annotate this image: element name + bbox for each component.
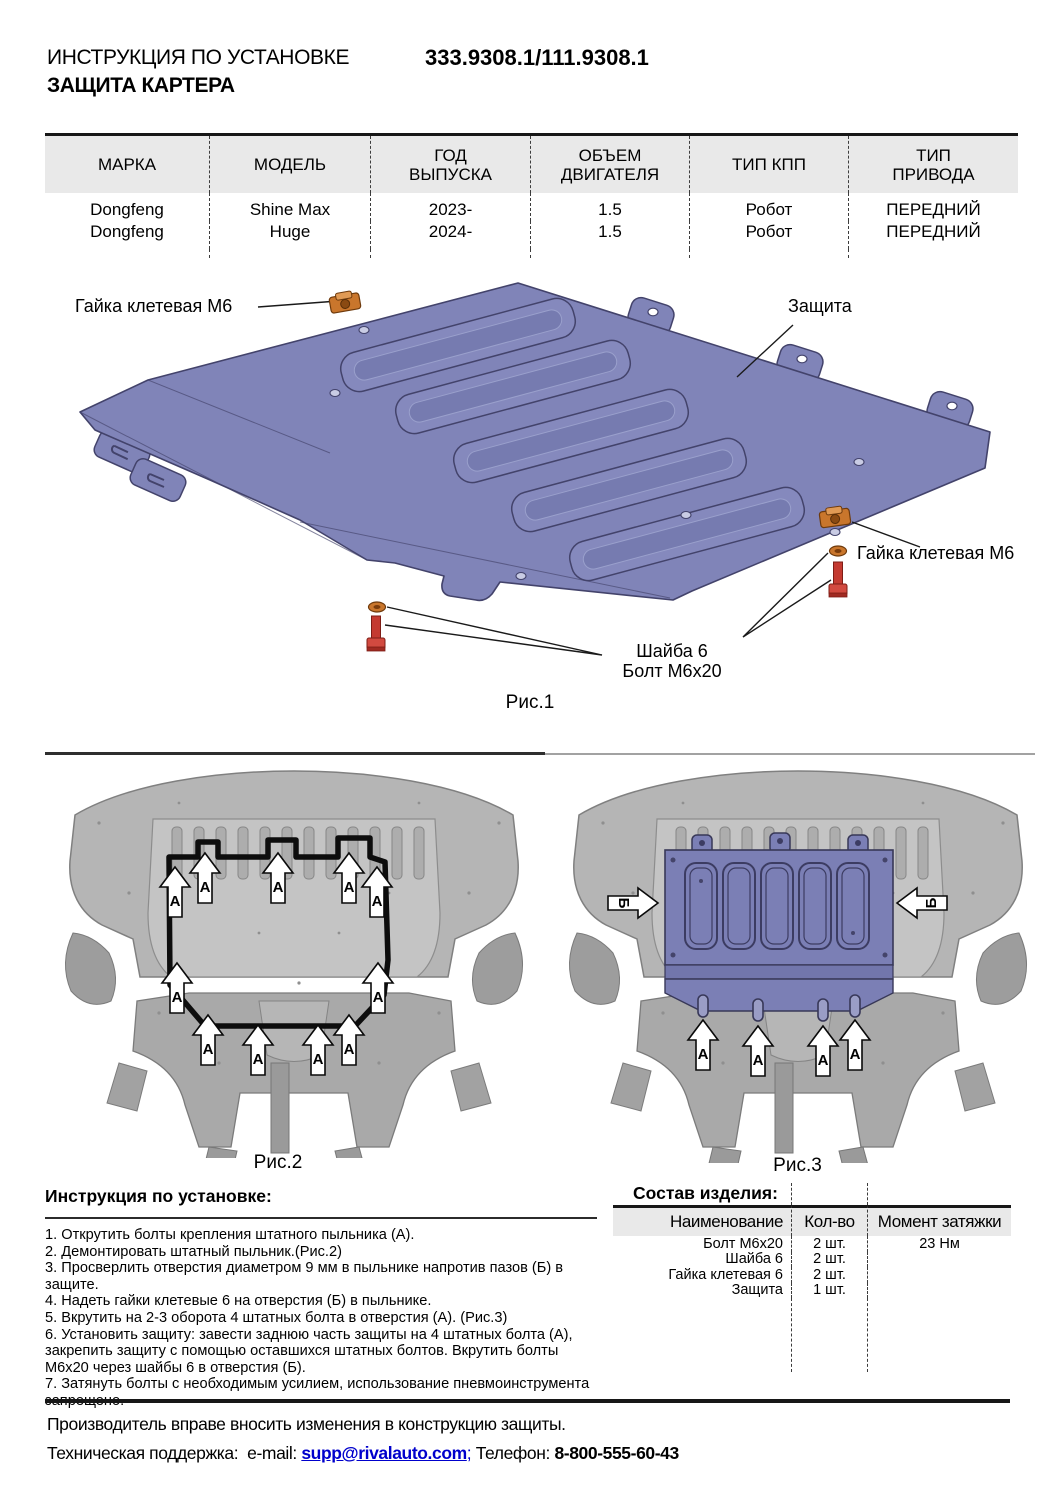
callout-cage-nut-top: Гайка клетевая М6: [75, 296, 232, 317]
svg-text:Б: Б: [615, 898, 632, 909]
cage-nut: [328, 290, 361, 314]
document-title-line2: ЗАЩИТА КАРТЕРА: [47, 74, 235, 98]
email-separator: ;: [467, 1443, 471, 1463]
bolt: [829, 562, 847, 597]
svg-text:А: А: [344, 879, 355, 896]
instruction-step: 6. Установить защиту: завести заднюю час…: [45, 1327, 597, 1377]
footer-support: Техническая поддержка: e-mail: supp@riva…: [47, 1443, 679, 1464]
footer-disclaimer: Производитель вправе вносить изменения в…: [47, 1414, 566, 1435]
callout-cage-nut-right: Гайка клетевая М6: [857, 543, 1014, 564]
phone-label: Телефон:: [476, 1443, 550, 1463]
parts-cell-torque: [868, 1252, 1011, 1268]
spec-col-header: ОБЪЕМДВИГАТЕЛЯ: [531, 136, 690, 193]
washer: [369, 602, 386, 612]
parts-cell-torque: 23 Нм: [868, 1236, 1011, 1252]
installation-instructions: Инструкция по установке: 1. Открутить бо…: [45, 1186, 597, 1410]
washer: [830, 546, 847, 556]
fig2-caption: Рис.2: [55, 1152, 501, 1174]
svg-text:А: А: [172, 989, 183, 1006]
part-number: 333.9308.1/111.9308.1: [425, 45, 649, 71]
spec-cell: Huge: [210, 221, 371, 249]
instruction-step: 3. Просверлить отверстия диаметром 9 мм …: [45, 1260, 597, 1293]
parts-col-header: Наименование: [613, 1205, 792, 1236]
spec-cell: Shine Max: [210, 193, 371, 221]
parts-cell-name: Гайка клетевая 6: [613, 1267, 792, 1283]
bolt: [367, 616, 385, 651]
svg-text:А: А: [200, 879, 211, 896]
spec-cell: Dongfeng: [45, 221, 210, 249]
support-label: Техническая поддержка: e-mail:: [47, 1443, 297, 1463]
instruction-step: 7. Затянуть болты с необходимым усилием,…: [45, 1376, 597, 1409]
callout-bolt: Болт М6х20: [597, 661, 747, 682]
svg-text:А: А: [818, 1052, 829, 1069]
callout-shield: Защита: [788, 296, 852, 317]
spec-col-header: ТИППРИВОДА: [849, 136, 1018, 193]
parts-cell-qty: 2 шт.: [792, 1267, 868, 1283]
spec-cell: 2023-: [371, 193, 531, 221]
parts-heading: Состав изделия:: [613, 1183, 792, 1205]
instruction-step: 5. Вкрутить на 2-3 оборота 4 штатных бол…: [45, 1310, 597, 1327]
support-phone: 8-800-555-60-43: [554, 1443, 678, 1463]
parts-cell-qty: 2 шт.: [792, 1252, 868, 1268]
spec-cell: 1.5: [531, 221, 690, 249]
fig3-underbody-with-shield: ББАААА: [555, 763, 1040, 1163]
svg-text:А: А: [372, 893, 383, 910]
instruction-step: 2. Демонтировать штатный пыльник.(Рис.2): [45, 1244, 597, 1261]
divider: [45, 1399, 1010, 1403]
fig1-shield-drawing: [30, 260, 1040, 715]
svg-text:А: А: [253, 1051, 264, 1068]
parts-table: Состав изделия: Наименование Кол-во Моме…: [613, 1183, 1011, 1372]
parts-cell-qty: 2 шт.: [792, 1236, 868, 1252]
instructions-heading: Инструкция по установке:: [45, 1186, 597, 1219]
svg-text:А: А: [344, 1041, 355, 1058]
svg-text:А: А: [313, 1051, 324, 1068]
spec-cell: ПЕРЕДНИЙ: [849, 221, 1018, 249]
support-email-link[interactable]: supp@rivalauto.com: [301, 1443, 466, 1463]
parts-cell-name: Защита: [613, 1283, 792, 1299]
svg-text:Б: Б: [923, 897, 940, 908]
instruction-sheet: ИНСТРУКЦИЯ ПО УСТАНОВКЕ ЗАЩИТА КАРТЕРА 3…: [0, 0, 1061, 1500]
parts-cell-torque: [868, 1283, 1011, 1299]
vehicle-spec-table: МАРКА МОДЕЛЬ ГОДВЫПУСКА ОБЪЕМДВИГАТЕЛЯ Т…: [45, 133, 1018, 258]
parts-cell-name: Шайба 6: [613, 1252, 792, 1268]
spec-cell: Робот: [690, 193, 849, 221]
svg-text:А: А: [273, 879, 284, 896]
spec-cell: Dongfeng: [45, 193, 210, 221]
parts-cell-torque: [868, 1267, 1011, 1283]
divider: [545, 753, 1035, 755]
parts-col-header: Кол-во: [792, 1205, 868, 1236]
document-title-line1: ИНСТРУКЦИЯ ПО УСТАНОВКЕ: [47, 46, 349, 70]
fig2-underbody-stock-cover: ААААААААААА: [55, 763, 535, 1158]
spec-col-header: ГОДВЫПУСКА: [371, 136, 531, 193]
spec-cell: 1.5: [531, 193, 690, 221]
spec-col-header: МАРКА: [45, 136, 210, 193]
spec-col-header: МОДЕЛЬ: [210, 136, 371, 193]
spec-cell: Робот: [690, 221, 849, 249]
svg-text:А: А: [170, 893, 181, 910]
svg-text:А: А: [753, 1052, 764, 1069]
fig3-caption: Рис.3: [555, 1155, 1040, 1177]
svg-text:А: А: [850, 1046, 861, 1063]
spec-col-header: ТИП КПП: [690, 136, 849, 193]
spec-cell: 2024-: [371, 221, 531, 249]
svg-text:А: А: [698, 1046, 709, 1063]
fig1-caption: Рис.1: [480, 692, 580, 714]
divider: [45, 752, 545, 755]
instruction-step: 4. Надеть гайки клетевые 6 на отверстия …: [45, 1293, 597, 1310]
installed-shield: [665, 833, 893, 1021]
spec-cell: ПЕРЕДНИЙ: [849, 193, 1018, 221]
parts-cell-qty: 1 шт.: [792, 1283, 868, 1299]
parts-col-header: Момент затяжки: [868, 1205, 1011, 1236]
callout-washer: Шайба 6: [597, 641, 747, 662]
parts-cell-name: Болт М6х20: [613, 1236, 792, 1252]
svg-text:А: А: [373, 989, 384, 1006]
svg-text:А: А: [203, 1041, 214, 1058]
instruction-step: 1. Открутить болты крепления штатного пы…: [45, 1227, 597, 1244]
